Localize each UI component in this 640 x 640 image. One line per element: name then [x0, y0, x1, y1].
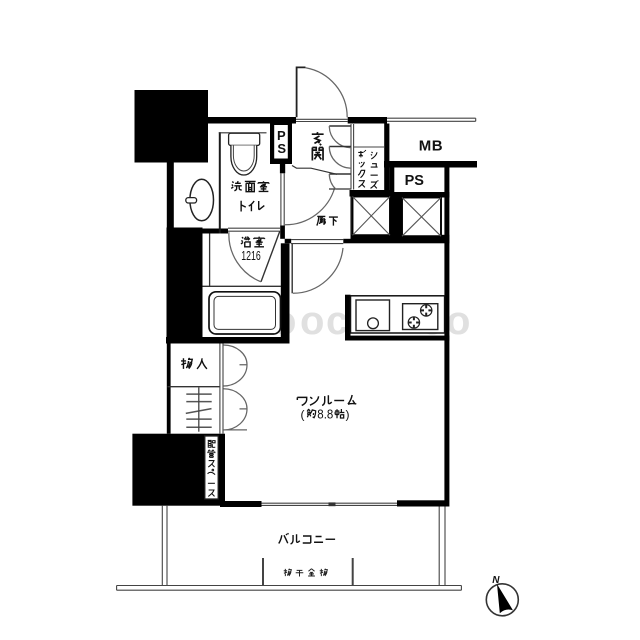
svg-text:): ): [346, 408, 350, 422]
svg-text:MB: MB: [419, 138, 443, 155]
svg-text:S: S: [277, 141, 286, 156]
svg-text:N: N: [492, 575, 500, 586]
svg-text:o: o: [300, 299, 324, 343]
svg-text:o: o: [446, 299, 470, 343]
svg-text:PS: PS: [405, 173, 425, 189]
svg-text:c: c: [326, 299, 348, 343]
svg-text:1216: 1216: [241, 248, 260, 263]
svg-text:8.8: 8.8: [317, 408, 333, 422]
svg-text:(: (: [301, 408, 305, 422]
